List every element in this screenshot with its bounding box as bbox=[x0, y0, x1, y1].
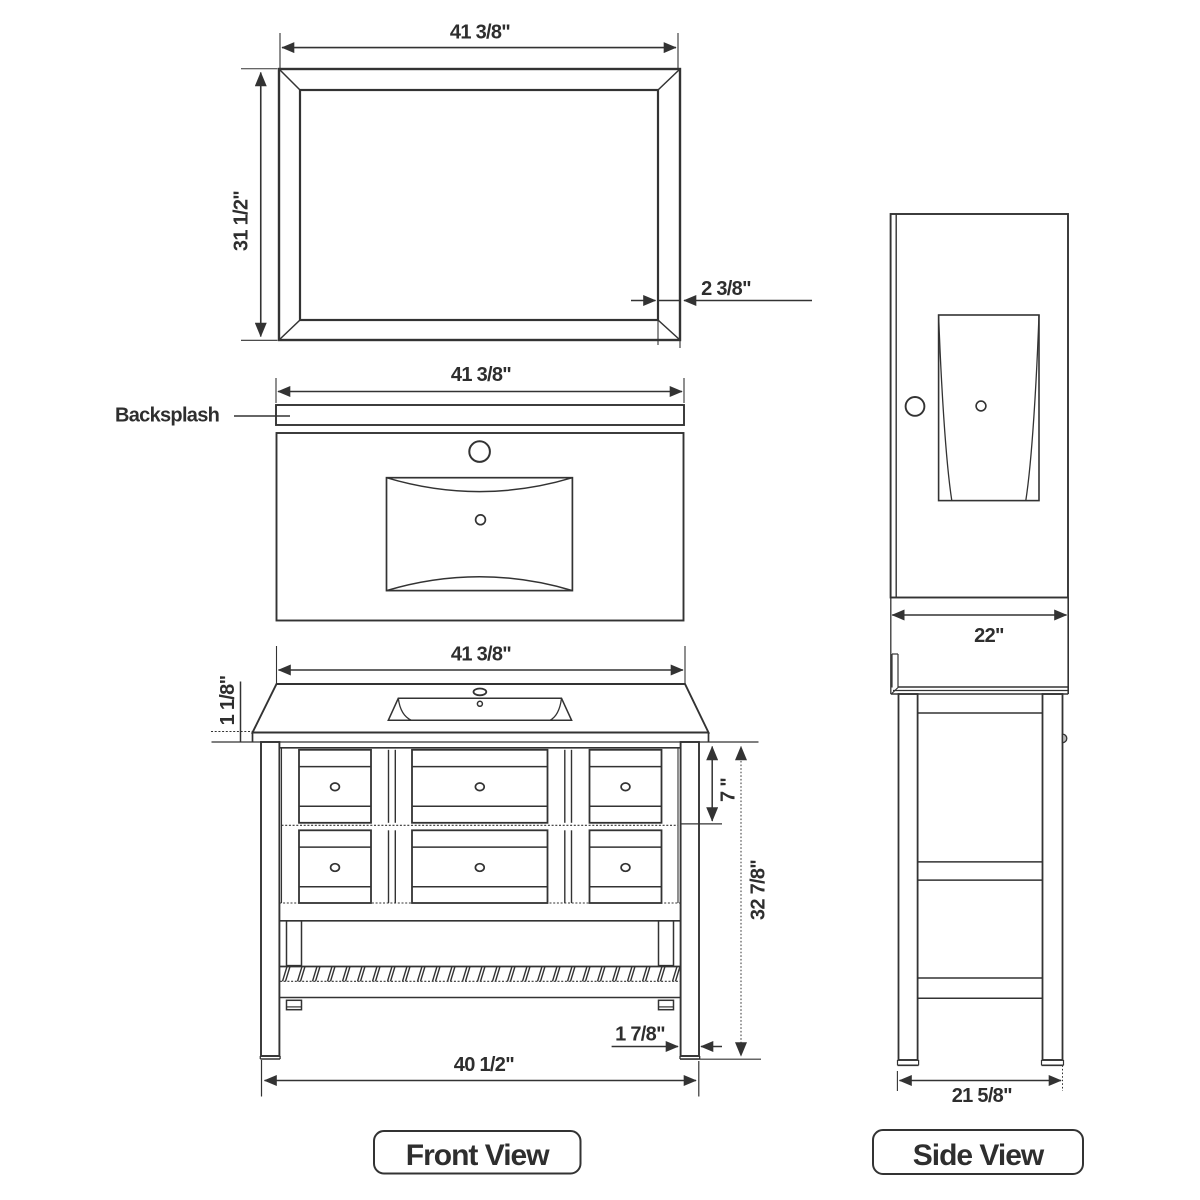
svg-text:40 1/2": 40 1/2" bbox=[454, 1054, 514, 1076]
svg-text:Side View: Side View bbox=[913, 1139, 1045, 1172]
svg-text:41 3/8": 41 3/8" bbox=[450, 22, 510, 44]
svg-text:41 3/8": 41 3/8" bbox=[451, 644, 511, 666]
svg-text:31 1/2": 31 1/2" bbox=[231, 191, 253, 251]
svg-text:41 3/8": 41 3/8" bbox=[451, 364, 511, 386]
svg-text:2 3/8": 2 3/8" bbox=[701, 278, 751, 300]
svg-text:32 7/8": 32 7/8" bbox=[748, 860, 770, 920]
svg-text:22": 22" bbox=[974, 625, 1004, 647]
svg-text:1 7/8": 1 7/8" bbox=[615, 1024, 665, 1046]
svg-text:7 ": 7 " bbox=[717, 778, 739, 802]
svg-text:Front View: Front View bbox=[406, 1139, 550, 1172]
svg-text:1 1/8": 1 1/8" bbox=[217, 675, 239, 725]
svg-text:21 5/8": 21 5/8" bbox=[952, 1085, 1012, 1107]
svg-text:Backsplash: Backsplash bbox=[115, 405, 219, 427]
